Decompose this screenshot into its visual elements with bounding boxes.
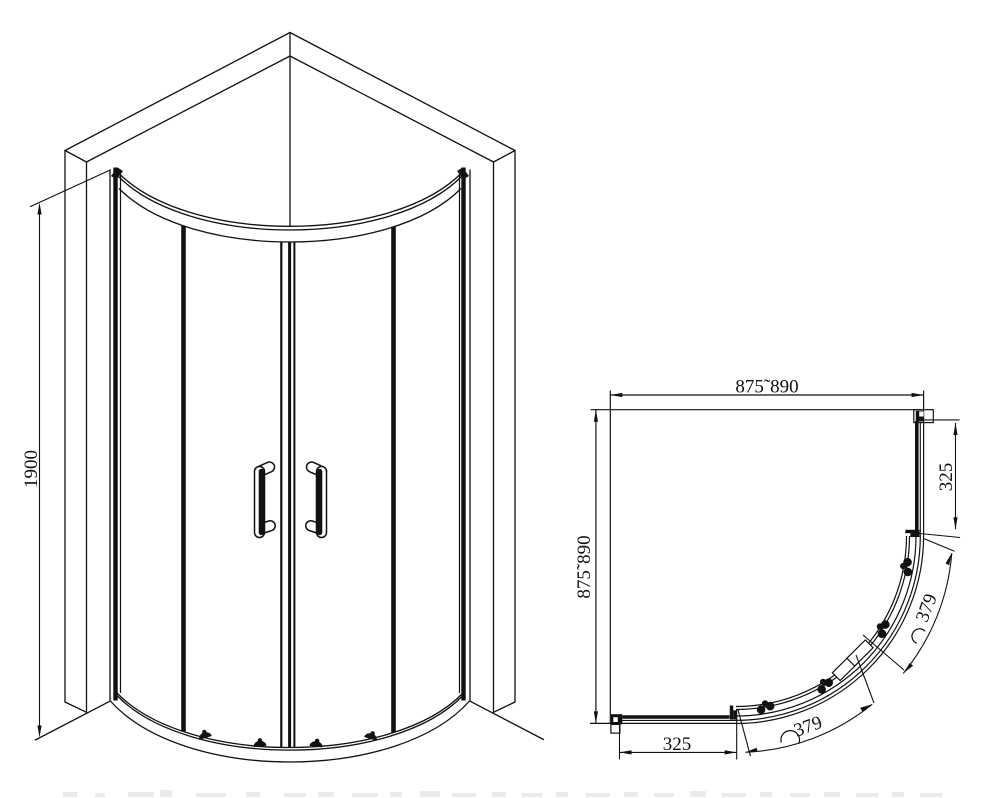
svg-text:875˜890: 875˜890 [735,377,798,398]
svg-text:1900: 1900 [21,450,42,488]
svg-text:875˜890: 875˜890 [574,535,595,598]
svg-text:325: 325 [663,734,692,755]
svg-text:325: 325 [936,463,957,492]
